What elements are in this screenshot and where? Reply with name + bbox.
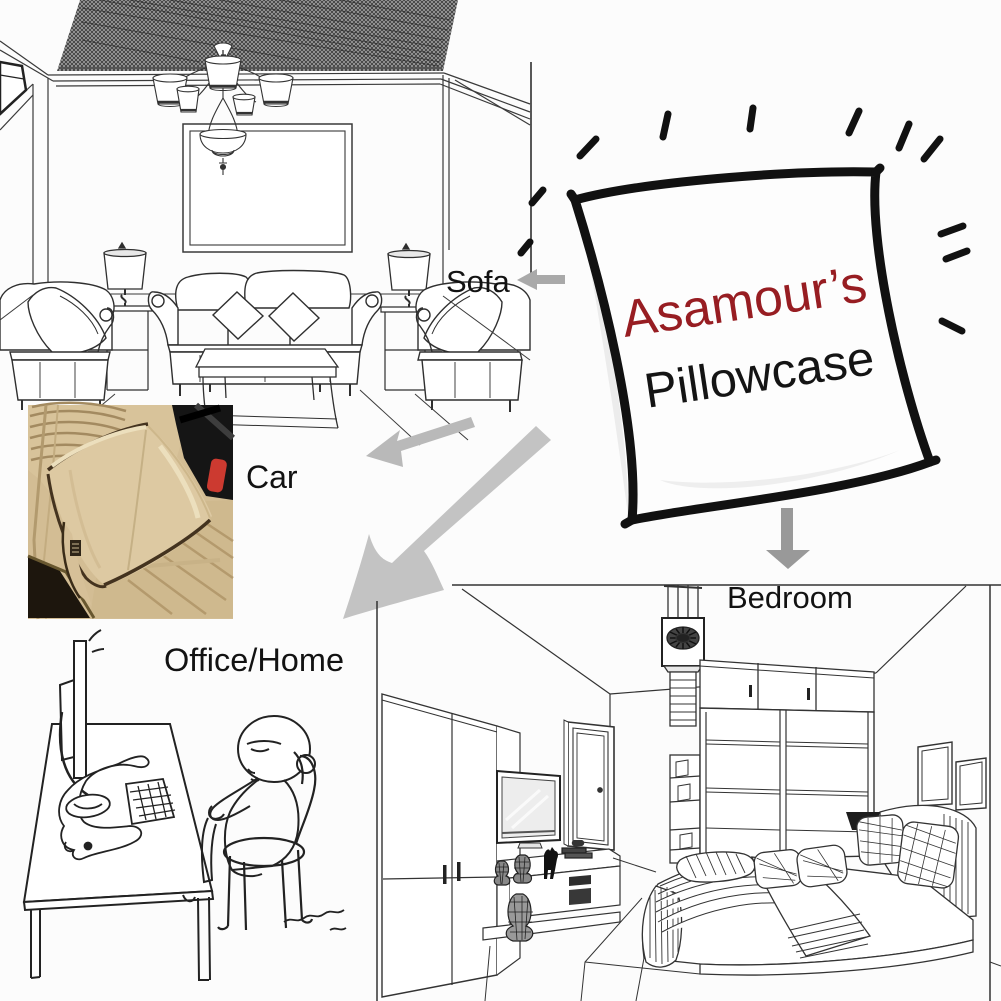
svg-text:Car: Car: [246, 459, 298, 495]
svg-text:Office/Home: Office/Home: [164, 642, 344, 678]
svg-text:Sofa: Sofa: [446, 264, 511, 299]
